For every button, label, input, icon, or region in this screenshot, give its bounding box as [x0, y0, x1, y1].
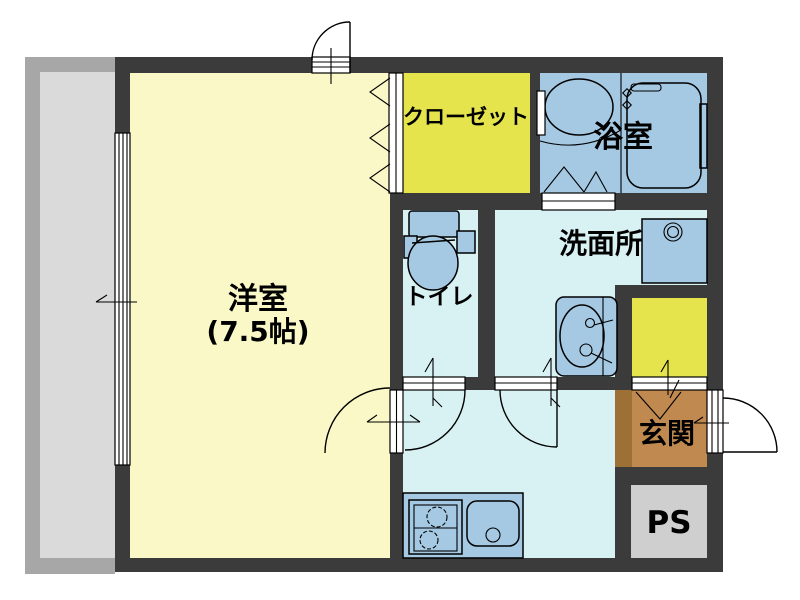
- bathroom-label: 浴室: [593, 120, 653, 155]
- washbasin-vanity: [556, 297, 617, 376]
- floor-plan-canvas: 洋室 (7.5帖) クローゼット 浴室 洗面所 トイレ 玄関 PS: [0, 0, 800, 600]
- entrance-label: 玄関: [639, 417, 695, 450]
- pipe-space-label: PS: [646, 505, 691, 541]
- washroom-label: 洗面所: [559, 227, 643, 260]
- room-closet-floor: [403, 73, 530, 193]
- window-left: [115, 133, 130, 465]
- bath-door-frame-left: [537, 91, 545, 135]
- entrance-storage-floor: [632, 298, 707, 377]
- western-room-size-label: (7.5帖): [206, 315, 309, 348]
- closet-label: クローゼット: [403, 105, 529, 129]
- entrance-step: [615, 390, 632, 467]
- entrance-front-door: [694, 390, 777, 453]
- floor-plan-page: 洋室 (7.5帖) クローゼット 浴室 洗面所 トイレ 玄関 PS: [0, 0, 800, 600]
- kitchen-counter: [403, 493, 523, 558]
- washing-machine-pan: [642, 219, 707, 283]
- toilet-label: トイレ: [405, 284, 474, 310]
- front-door-arc: [723, 398, 777, 452]
- western-room-label: 洋室: [228, 282, 288, 317]
- balcony-inner: [40, 72, 115, 558]
